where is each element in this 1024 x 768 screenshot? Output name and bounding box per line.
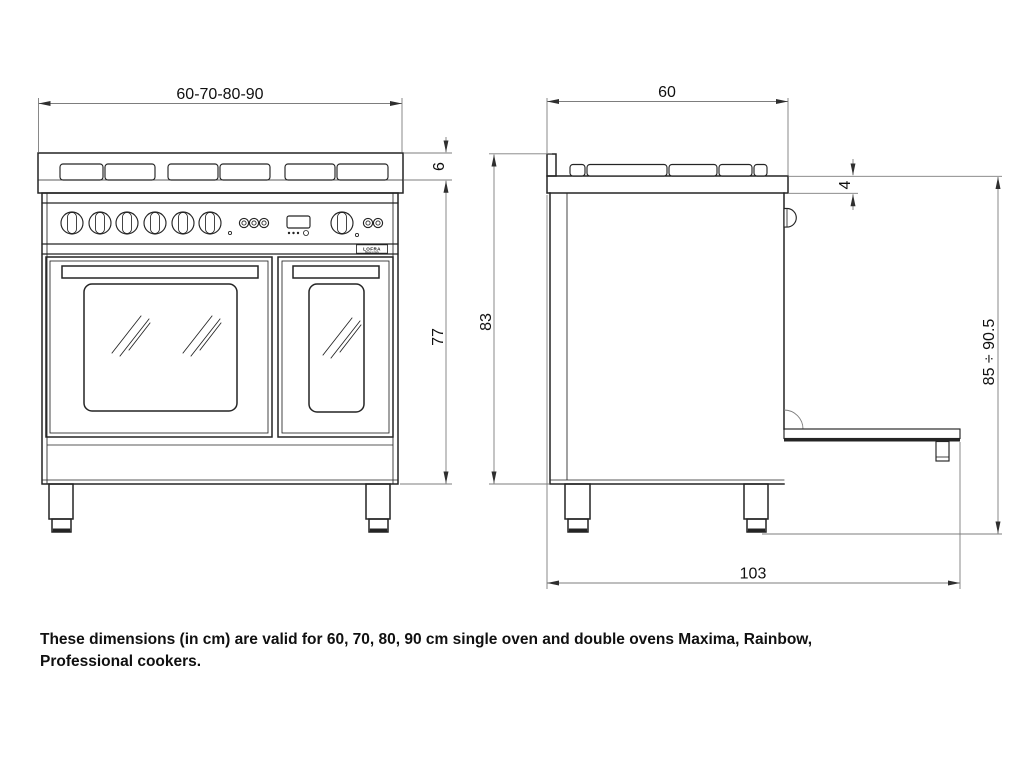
dim-front-height-label: 77 bbox=[430, 328, 447, 346]
foot-pad bbox=[748, 529, 765, 533]
dim-front-width-label: 60-70-80-90 bbox=[176, 86, 263, 103]
ignition-button-inner bbox=[252, 221, 256, 225]
front-dimensions: 60-70-80-90 6 77 bbox=[39, 86, 453, 484]
burner-knob bbox=[172, 212, 194, 234]
pan-support bbox=[285, 164, 335, 180]
pan-support bbox=[220, 164, 270, 180]
oven-knob bbox=[331, 212, 353, 234]
front-view: LOFRA Made in Italy bbox=[38, 153, 403, 532]
side-oven-knob bbox=[784, 209, 796, 228]
side-view bbox=[547, 154, 960, 532]
ignition-button bbox=[239, 218, 248, 227]
dim-pan-support-label: 4 bbox=[837, 180, 854, 189]
oven-door-left-handle bbox=[62, 266, 258, 278]
clock-display bbox=[287, 216, 310, 228]
door-swing-arc bbox=[784, 410, 803, 429]
side-hob-slab bbox=[547, 176, 788, 193]
foot-pad bbox=[370, 529, 387, 533]
burner-knob-grip bbox=[123, 213, 132, 234]
dim-rear-height-ext bbox=[489, 154, 552, 484]
ignition-button bbox=[249, 218, 258, 227]
pan-support bbox=[60, 164, 103, 180]
oven-light-button-inner bbox=[366, 221, 370, 225]
burner-knob bbox=[61, 212, 83, 234]
technical-drawing-page: LOFRA Made in Italy 60-70-80-90 bbox=[0, 0, 1024, 768]
glass-reflections bbox=[112, 316, 221, 356]
foot-pad bbox=[53, 529, 70, 533]
cooker-dimension-drawing: LOFRA Made in Italy 60-70-80-90 bbox=[0, 0, 1024, 768]
brand-logo-text: LOFRA bbox=[363, 246, 381, 251]
foot-pad bbox=[569, 529, 587, 533]
pan-support bbox=[168, 164, 218, 180]
front-body-outline bbox=[42, 193, 398, 484]
dim-worktop-height-label: 85 ÷ 90.5 bbox=[981, 319, 998, 386]
glass-reflections bbox=[323, 318, 361, 358]
burner-knob bbox=[116, 212, 138, 234]
oven-door-left-window bbox=[84, 284, 237, 411]
burner-knob bbox=[199, 212, 221, 234]
caption: These dimensions (in cm) are valid for 6… bbox=[40, 631, 812, 670]
pan-support bbox=[570, 165, 585, 177]
open-door-panel bbox=[784, 429, 960, 439]
oven-knob-grip bbox=[338, 213, 347, 234]
leg bbox=[565, 484, 590, 519]
ignition-button-inner bbox=[262, 221, 266, 225]
side-body-inner-lines bbox=[550, 193, 784, 480]
pan-support bbox=[105, 164, 155, 180]
side-pan-supports bbox=[570, 165, 767, 177]
burner-knob-grip bbox=[151, 213, 160, 234]
open-door-outer-face bbox=[784, 439, 960, 442]
clock-button bbox=[297, 232, 299, 234]
caption-line-2: Professional cookers. bbox=[40, 653, 201, 670]
open-oven-door bbox=[784, 429, 960, 461]
side-legs bbox=[565, 484, 768, 532]
clock-button bbox=[288, 232, 290, 234]
leg bbox=[366, 484, 390, 519]
indicator-light bbox=[355, 233, 358, 236]
clock-button bbox=[292, 232, 294, 234]
caption-line-1: These dimensions (in cm) are valid for 6… bbox=[40, 631, 812, 648]
burner-knob-grip bbox=[68, 213, 77, 234]
oven-light-button bbox=[373, 218, 382, 227]
indicator-light bbox=[228, 231, 231, 234]
oven-light-button bbox=[363, 218, 372, 227]
leg bbox=[744, 484, 768, 519]
dim-front-width-ext bbox=[39, 98, 403, 152]
pan-support bbox=[719, 165, 752, 177]
pan-support bbox=[754, 165, 767, 177]
oven-door-right-window bbox=[309, 284, 364, 412]
pan-support bbox=[337, 164, 388, 180]
front-legs bbox=[49, 484, 390, 532]
pan-support bbox=[669, 165, 717, 177]
dim-open-depth-label: 103 bbox=[740, 566, 767, 583]
oven-light-button-inner bbox=[376, 221, 380, 225]
dim-depth-ext bbox=[547, 98, 788, 175]
oven-door-right-handle bbox=[293, 266, 379, 278]
front-oven-doors bbox=[46, 257, 393, 437]
brand-tagline-text: Made in Italy bbox=[365, 251, 380, 254]
dim-pan-support-ext bbox=[789, 176, 1002, 193]
front-pan-supports bbox=[60, 164, 388, 180]
side-backsplash bbox=[547, 154, 556, 176]
ignition-button bbox=[259, 218, 268, 227]
burner-knob-grip bbox=[96, 213, 105, 234]
dim-depth-label: 60 bbox=[658, 84, 676, 101]
leg bbox=[49, 484, 73, 519]
dim-hob-edge-label: 6 bbox=[431, 162, 448, 171]
dim-rear-height-label: 83 bbox=[478, 313, 495, 331]
ignition-button-inner bbox=[242, 221, 246, 225]
burner-knob-grip bbox=[206, 213, 215, 234]
front-body-inner-lines bbox=[42, 193, 398, 484]
oven-door-right-inner bbox=[282, 261, 389, 433]
burner-knob-grip bbox=[179, 213, 188, 234]
burner-knob bbox=[89, 212, 111, 234]
clock-button bbox=[304, 231, 309, 236]
open-door-handle bbox=[936, 442, 949, 462]
front-control-panel: LOFRA Made in Italy bbox=[42, 203, 398, 254]
side-body-outline bbox=[550, 193, 784, 484]
burner-knob bbox=[144, 212, 166, 234]
pan-support bbox=[587, 165, 667, 177]
